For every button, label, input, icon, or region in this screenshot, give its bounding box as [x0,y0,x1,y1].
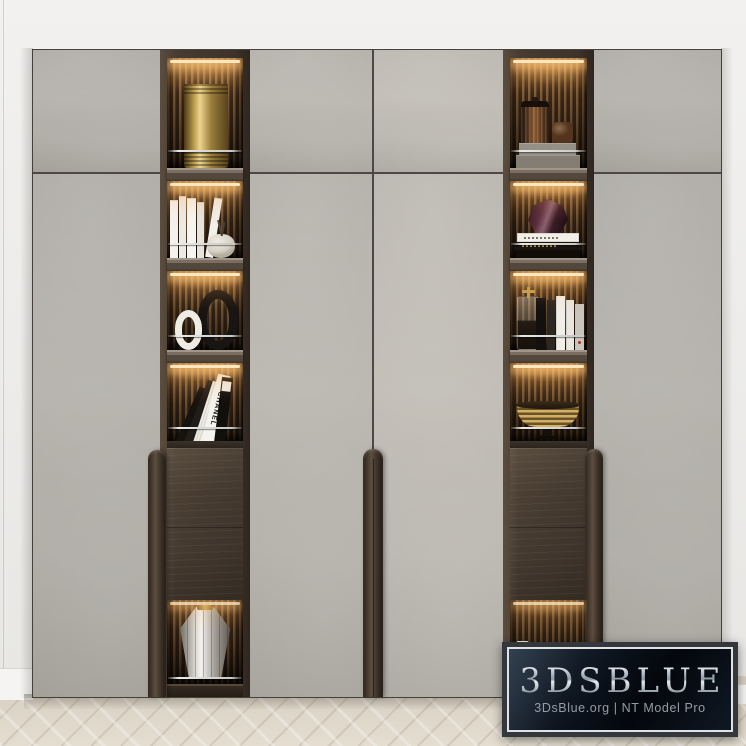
left-shelf-2 [167,181,243,258]
gallery-rail [511,335,586,337]
gallery-rail [168,150,242,152]
gallery-rail [168,243,242,245]
left-vertical-handle [148,450,166,697]
door-upper-left [33,50,160,172]
standing-books [536,296,584,350]
wardrobe-cabinet: CHANEL [33,50,721,697]
door-upper-right [594,50,721,172]
gallery-rail [511,150,586,152]
vase-gold-rim [197,605,213,610]
smoked-glass-jar-small [552,122,573,143]
gallery-rail [511,243,586,245]
drawer-top-board [167,441,243,448]
black-ring-vase [198,290,238,350]
door-upper-center-right [374,50,503,172]
led-strip [170,602,240,605]
shelf-board [510,168,587,181]
led-strip [513,365,584,368]
left-shelf-1 [167,58,243,168]
leaning-fashion-books: CHANEL [167,363,243,441]
watermark-subtitle: 3DsBlue.org | NT Model Pro [534,701,705,715]
led-strip [170,273,240,276]
left-shelf-3 [167,271,243,350]
plum-faceted-vase [528,199,568,233]
cream-vase-with-sprig [207,234,235,258]
door-upper-center-left [250,50,372,172]
door-lower-center-left [250,174,372,697]
led-strip [513,183,584,186]
led-strip [170,183,240,186]
led-strip [170,60,240,63]
right-shelf-1 [510,58,587,168]
door-lower-center-right [374,174,503,697]
drawer-top-board [510,441,587,448]
shelf-board [510,258,587,271]
right-shelf-3 [510,271,587,350]
right-shelf-2 [510,181,587,258]
furniture-render-scene: CHANEL [0,0,746,746]
shelving-column-left: CHANEL [160,50,250,697]
shelving-column-right [503,50,594,697]
cabinet-side-shadow-left [20,48,33,698]
gallery-rail [168,427,242,429]
door-lower-right [594,174,721,697]
wall-corner-line [3,0,4,690]
gallery-rail [511,427,586,429]
watermark-brand: 3DSBLUE [514,664,725,698]
shelf-board [167,350,243,363]
left-shelf-4: CHANEL [167,363,243,441]
right-shelf-4 [510,363,587,441]
white-ring-vase [175,310,202,350]
watermark-badge: 3DSBLUE 3DsBlue.org | NT Model Pro [502,642,738,737]
gallery-rail [168,335,242,337]
drawer-front-left [167,448,243,600]
led-strip [170,365,240,368]
led-strip [513,602,584,605]
led-strip [513,273,584,276]
shelf-board [167,258,243,271]
door-lower-left [33,174,160,697]
gallery-rail [168,677,242,679]
handle-center-seam [373,459,374,697]
shelf-board [167,168,243,181]
brass-cylinder-canister [184,84,228,168]
center-vertical-handle [363,449,383,697]
watermark-badge-inner: 3DSBLUE 3DsBlue.org | NT Model Pro [507,647,733,732]
cabinet-side-shadow-right [721,48,733,700]
led-strip [513,60,584,63]
concrete-box-stack [516,143,580,168]
faceted-silver-vase [180,607,230,679]
column-base-board [167,684,243,697]
left-bottom-niche [167,600,243,684]
shelf-board [510,350,587,363]
stacked-books [512,233,584,258]
smoked-glass-jar-large [521,101,549,143]
drawer-front-right [510,448,587,600]
brass-ribbed-bowl [515,397,581,439]
